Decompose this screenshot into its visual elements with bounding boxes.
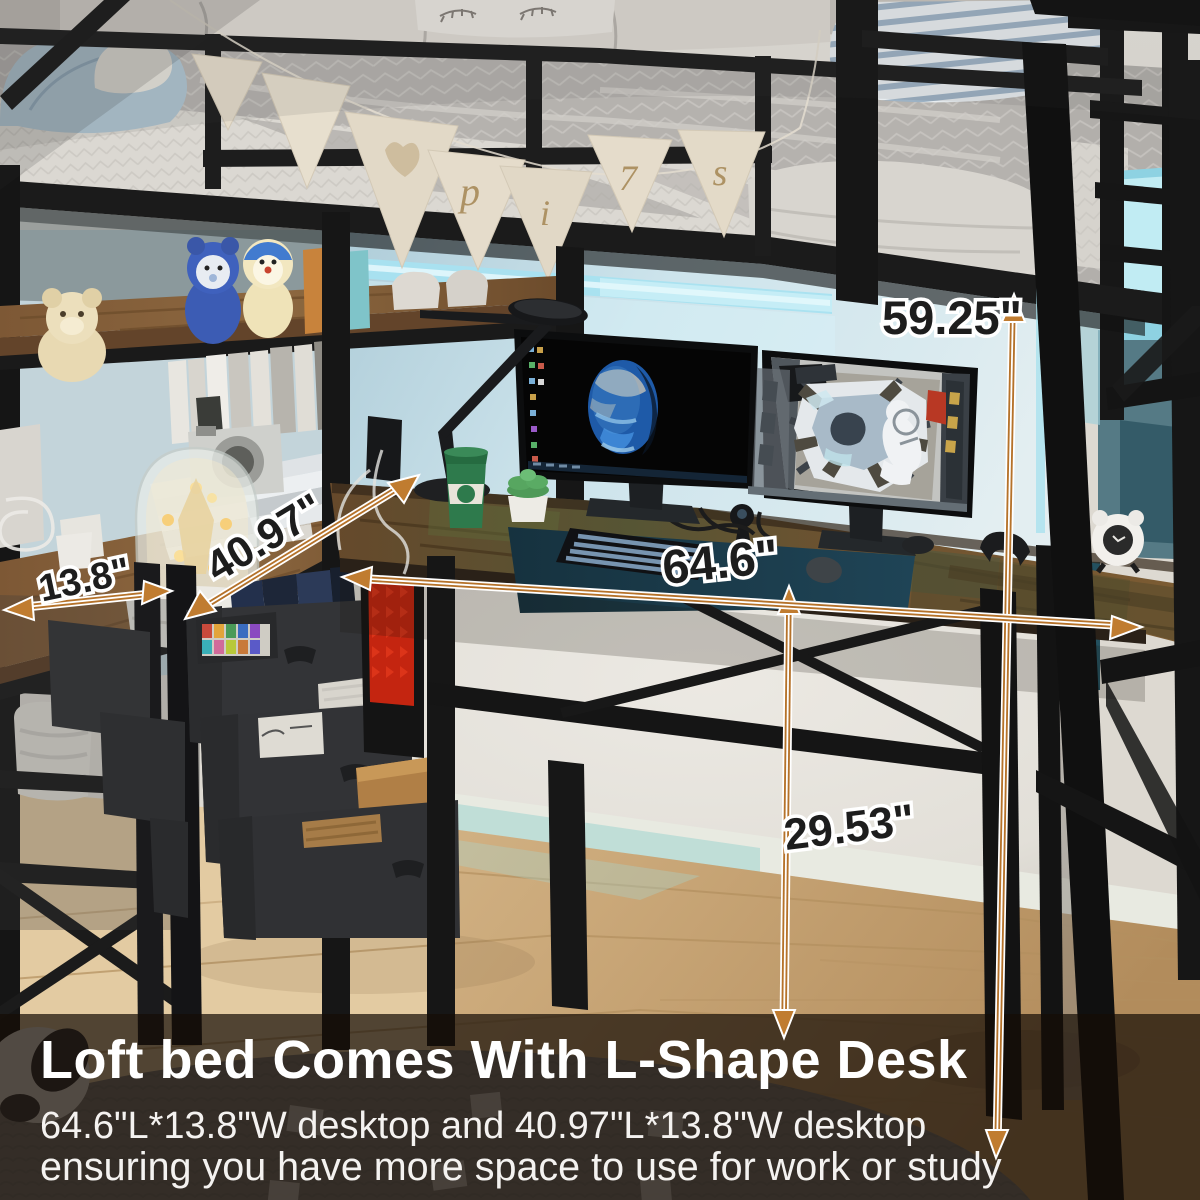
svg-text:ensuring you have more space t: ensuring you have more space to use for … [40,1145,1002,1189]
svg-text:59.25": 59.25" [882,291,1022,344]
svg-text:i: i [540,193,550,233]
svg-text:7: 7 [619,158,639,198]
svg-text:Loft bed Comes With L-Shape De: Loft bed Comes With L-Shape Desk [40,1030,968,1090]
svg-text:s: s [713,152,728,194]
svg-text:p: p [457,169,480,214]
svg-text:64.6"L*13.8"W desktop and 40.9: 64.6"L*13.8"W desktop and 40.97"L*13.8"W… [40,1105,926,1147]
